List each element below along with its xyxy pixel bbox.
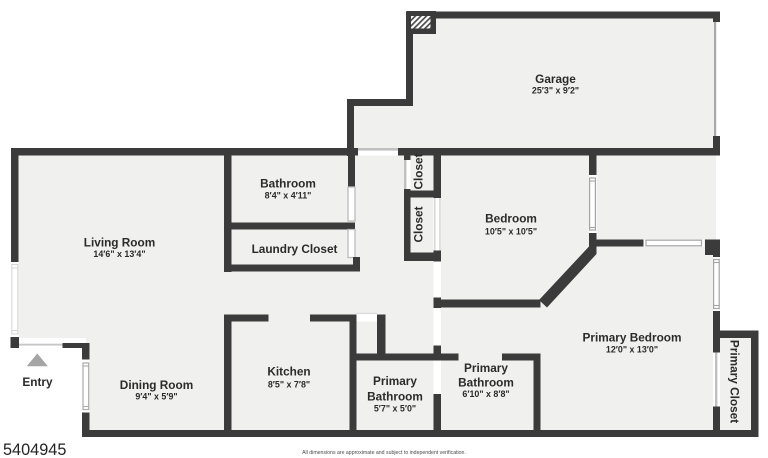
svg-text:Bathroom: Bathroom xyxy=(260,177,316,191)
svg-text:Laundry Closet: Laundry Closet xyxy=(252,242,338,256)
svg-text:Primary Closet: Primary Closet xyxy=(728,340,742,423)
svg-text:5404945: 5404945 xyxy=(3,441,66,458)
svg-text:6′10" x 8′8": 6′10" x 8′8" xyxy=(462,389,509,399)
svg-text:Kitchen: Kitchen xyxy=(267,365,310,379)
svg-text:Bedroom: Bedroom xyxy=(485,212,537,226)
svg-text:9′4" x 5′9": 9′4" x 5′9" xyxy=(135,392,177,402)
svg-text:5′7" x 5′0": 5′7" x 5′0" xyxy=(374,404,416,414)
svg-text:Bathroom: Bathroom xyxy=(367,390,423,404)
svg-text:8′4" x 4′11": 8′4" x 4′11" xyxy=(265,191,312,201)
svg-text:Bathroom: Bathroom xyxy=(458,376,514,390)
svg-text:All dimensions are approximate: All dimensions are approximate and subje… xyxy=(302,450,466,456)
svg-text:Primary: Primary xyxy=(464,361,508,375)
svg-text:Dining Room: Dining Room xyxy=(120,378,193,392)
svg-text:Primary Bedroom: Primary Bedroom xyxy=(583,331,682,345)
svg-text:25′3" x 9′2": 25′3" x 9′2" xyxy=(532,86,579,96)
svg-text:Closet: Closet xyxy=(412,153,426,189)
svg-text:Closet: Closet xyxy=(412,206,426,242)
svg-text:10′5" x 10′5": 10′5" x 10′5" xyxy=(485,227,537,237)
svg-text:Entry: Entry xyxy=(22,375,53,389)
svg-text:Living Room: Living Room xyxy=(84,236,155,250)
svg-text:8′5" x 7′8": 8′5" x 7′8" xyxy=(268,380,310,390)
svg-text:Primary: Primary xyxy=(373,374,417,388)
svg-text:14′6" x 13′4": 14′6" x 13′4" xyxy=(93,249,145,259)
svg-text:12′0" x 13′0": 12′0" x 13′0" xyxy=(606,345,658,355)
svg-text:Garage: Garage xyxy=(535,72,576,86)
